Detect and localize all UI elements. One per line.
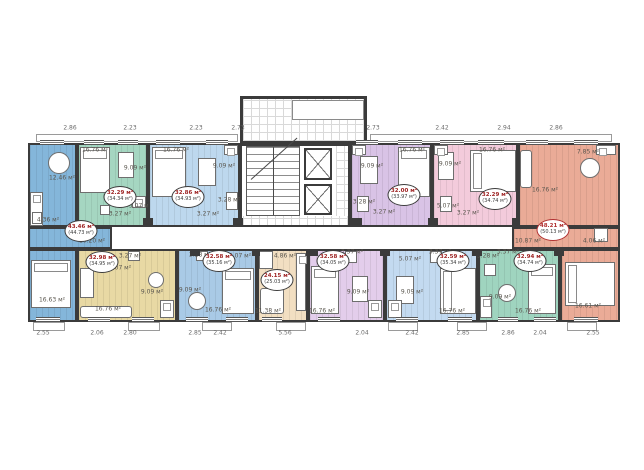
- elevator-shaft: [304, 148, 332, 180]
- pillow: [568, 265, 577, 303]
- window: [356, 140, 378, 145]
- elevator-shaft: [304, 184, 332, 215]
- apartment-total-area: (33.97 м²): [391, 195, 417, 200]
- utility-shaft: [380, 249, 390, 256]
- utility-shaft: [554, 249, 564, 256]
- apartment-total-area: (35.34 м²): [440, 261, 466, 266]
- window: [398, 140, 422, 145]
- pillow: [225, 271, 251, 280]
- apartment-total-area: (25.03 м²): [264, 280, 290, 285]
- window: [40, 140, 64, 145]
- utility-shaft: [233, 218, 243, 226]
- floor-plan: 12.46 м²4.36 м²10.20 м²16.63 м²16.76 м²9…: [0, 0, 644, 470]
- room-area-label: 3.28 м²: [353, 199, 375, 206]
- bathroom-fixture: [484, 264, 496, 276]
- window: [226, 317, 248, 322]
- utility-shaft: [143, 218, 153, 226]
- kitchen-counter: [368, 300, 382, 318]
- room-area-label: 4.36 м²: [37, 217, 59, 224]
- utility-shaft: [428, 218, 438, 226]
- entrance-porch: [292, 100, 364, 120]
- bathroom-fixture: [259, 251, 273, 269]
- room-area-label: 16.76 м²: [515, 308, 541, 315]
- dimension-label: 2.23: [123, 125, 136, 132]
- room-area-label: 16.76 м²: [309, 308, 335, 315]
- dimension-label: 2.85: [456, 330, 469, 337]
- bed: [80, 147, 110, 193]
- room-area-label: 16.76 м²: [82, 147, 108, 154]
- apartment-total-area: (34.93 м²): [175, 197, 201, 202]
- room-area-label: 16.76 м²: [95, 306, 121, 313]
- dimension-label: 2.73: [366, 125, 379, 132]
- dimension-label: 2.86: [501, 330, 514, 337]
- room-area-label: 12.46 м²: [49, 175, 75, 182]
- room-area-label: 16.76 м²: [439, 308, 465, 315]
- window: [526, 140, 548, 145]
- kitchen-counter: [352, 145, 366, 155]
- corridor: [112, 227, 514, 249]
- apartment-total-area: (44.73 м²): [68, 231, 94, 236]
- pillow: [34, 263, 68, 272]
- area-badge-unit-12: 32.94 м²(34.74 м²): [514, 250, 547, 272]
- dimension-label: 2.04: [533, 330, 546, 337]
- room-area-label: 10.87 м²: [515, 238, 541, 245]
- apartment-total-area: (34.34 м²): [107, 197, 133, 202]
- room-area-label: 9.09 м²: [439, 161, 461, 168]
- utility-shaft: [308, 249, 318, 256]
- room-area-label: 11.38 м²: [255, 308, 281, 315]
- dimension-label: 2.85: [188, 330, 201, 337]
- window: [84, 140, 104, 145]
- area-badge-unit-1: 43.46 м²(44.73 м²): [65, 220, 98, 242]
- apartment-total-area: (34.74 м²): [517, 261, 543, 266]
- dining-table: [188, 292, 206, 310]
- area-badge-unit-10: 32.58 м²(34.05 м²): [317, 250, 350, 272]
- area-badge-unit-5: 32.29 м²(34.74 м²): [479, 188, 512, 210]
- area-badge-unit-9: 24.15 м²(25.03 м²): [261, 269, 294, 291]
- window: [440, 140, 464, 145]
- room-area-label: 16.76 м²: [205, 307, 231, 314]
- room-area-label: 7.85 м²: [577, 149, 599, 156]
- dining-table: [48, 152, 70, 174]
- sink: [371, 303, 379, 311]
- sink: [599, 148, 607, 156]
- sink: [391, 303, 399, 311]
- window: [206, 140, 228, 145]
- room-area-label: 3.27 м²: [457, 210, 479, 217]
- apartment-total-area: (34.05 м²): [320, 261, 346, 266]
- sink: [227, 148, 235, 156]
- dimension-label: 2.23: [189, 125, 202, 132]
- sink: [299, 256, 307, 264]
- window: [156, 140, 180, 145]
- window: [262, 317, 282, 322]
- dimension-label: 5.56: [278, 330, 291, 337]
- window: [574, 317, 598, 322]
- window: [498, 317, 518, 322]
- wardrobe: [80, 268, 94, 298]
- sink: [437, 148, 445, 156]
- sink: [355, 148, 363, 156]
- dining-table: [148, 272, 164, 288]
- utility-shaft: [252, 249, 260, 256]
- window: [318, 317, 340, 322]
- room-area-label: 4.86 м²: [274, 253, 296, 260]
- dimension-label: 2.42: [435, 125, 448, 132]
- area-badge-unit-7: 32.98 м²(34.95 м²): [86, 251, 119, 273]
- utility-shaft: [352, 218, 362, 226]
- room-area-label: 3.27 м²: [109, 211, 131, 218]
- apartment-total-area: (34.95 м²): [89, 262, 115, 267]
- staircase: [246, 146, 300, 216]
- room-area-label: 3.27 м²: [373, 209, 395, 216]
- area-badge-unit-3: 32.86 м²(34.93 м²): [172, 186, 205, 208]
- apartment-total-area: (35.16 м²): [206, 261, 232, 266]
- dimension-label: 2.55: [586, 330, 599, 337]
- apartment-total-area: (50.13 м²): [540, 230, 566, 235]
- dimension-label: 2.94: [497, 125, 510, 132]
- room-area-label: 9.09 м²: [179, 287, 201, 294]
- dimension-label: 2.86: [549, 125, 562, 132]
- bed: [470, 150, 516, 192]
- kitchen-counter: [434, 145, 448, 155]
- sink: [163, 303, 171, 311]
- dimension-label: 2.06: [90, 330, 103, 337]
- room-area-label: 9.09 м²: [213, 163, 235, 170]
- room-area-label: 9.09 м²: [347, 289, 369, 296]
- area-badge-unit-2: 32.29 м²(34.34 м²): [104, 186, 137, 208]
- dimension-label: 2.73: [231, 125, 244, 132]
- room-area-label: 9.09 м²: [361, 163, 383, 170]
- window: [88, 317, 110, 322]
- pillow: [443, 271, 452, 311]
- kitchen-counter: [296, 253, 306, 311]
- utility-shaft: [472, 249, 482, 256]
- kitchen-counter: [388, 300, 402, 318]
- room-area-label: 16.76 м²: [163, 147, 189, 154]
- dimension-label: 2.04: [355, 330, 368, 337]
- bed: [565, 262, 615, 306]
- floor-texture: [520, 145, 618, 225]
- room-area-label: 16.63 м²: [39, 297, 65, 304]
- room-area-label: 9.09 м²: [489, 294, 511, 301]
- kitchen-counter: [224, 145, 238, 155]
- window: [534, 317, 556, 322]
- room-area-label: 9.09 м²: [401, 289, 423, 296]
- room-area-label: 3.28 м²: [218, 197, 240, 204]
- kitchen-counter: [160, 300, 174, 318]
- room-area-label: 16.76 м²: [532, 187, 558, 194]
- dimension-label: 2.42: [405, 330, 418, 337]
- apartment-total-area: (34.74 м²): [482, 199, 508, 204]
- sofa: [520, 150, 532, 188]
- room-area-label: 3.27 м²: [119, 253, 141, 260]
- dimension-label: 2.86: [63, 125, 76, 132]
- pillow: [473, 153, 482, 189]
- area-badge-unit-8: 32.58 м²(35.16 м²): [203, 250, 236, 272]
- area-badge-unit-6: 48.21 м²(50.13 м²): [537, 219, 570, 241]
- sink: [33, 195, 41, 203]
- window: [478, 140, 504, 145]
- window: [574, 140, 598, 145]
- window: [396, 317, 418, 322]
- window: [186, 317, 208, 322]
- dimension-label: 2.42: [213, 330, 226, 337]
- room-area-label: 16.76 м²: [479, 147, 505, 154]
- room-area-label: 16.61 м²: [575, 303, 601, 310]
- dimension-label: 2.80: [123, 330, 136, 337]
- room-area-label: 4.06 м²: [583, 238, 605, 245]
- room-area-label: 3.27 м²: [197, 211, 219, 218]
- window: [36, 317, 60, 322]
- room-area-label: 5.07 м²: [399, 256, 421, 263]
- area-badge-unit-4: 32.00 м²(33.97 м²): [388, 184, 421, 206]
- utility-shaft: [190, 249, 200, 256]
- kitchen-table: [360, 156, 378, 184]
- window: [118, 140, 138, 145]
- window: [448, 317, 472, 322]
- dining-table: [580, 158, 600, 178]
- room-area-label: 5.07 м²: [437, 203, 459, 210]
- room-area-label: 9.09 м²: [124, 165, 146, 172]
- room-area-label: 9.09 м²: [141, 289, 163, 296]
- utility-shaft: [512, 218, 520, 226]
- dimension-label: 2.55: [36, 330, 49, 337]
- window: [132, 317, 154, 322]
- area-badge-unit-11: 32.59 м²(35.34 м²): [437, 250, 470, 272]
- room-area-label: 16.76 м²: [399, 147, 425, 154]
